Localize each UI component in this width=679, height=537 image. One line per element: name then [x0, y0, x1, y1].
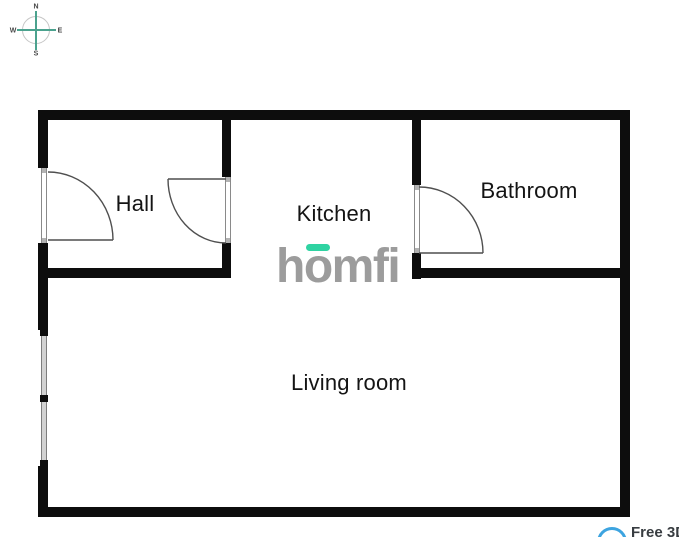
- wall-exterior-left-upper: [38, 110, 48, 168]
- door-jamb-cap: [42, 168, 46, 173]
- compass-label-east: E: [58, 28, 63, 35]
- room-label-living-room: Living room: [291, 370, 407, 396]
- free-3d-badge-icon: [597, 527, 627, 537]
- room-label-bathroom: Bathroom: [481, 178, 578, 204]
- wall-bathroom-bottom: [412, 268, 630, 278]
- wall-hall-kitchen-upper: [222, 110, 231, 177]
- wall-exterior-top: [38, 110, 630, 120]
- door-jamb-entry: [41, 168, 47, 243]
- logo-text-mfi: mfi: [332, 240, 400, 293]
- wall-kitchen-bathroom-upper: [412, 110, 421, 185]
- door-jamb-cap: [415, 248, 419, 253]
- door-jamb-cap: [42, 238, 46, 243]
- homfi-logo: homfi: [276, 243, 399, 291]
- wall-exterior-left-middle: [38, 243, 48, 330]
- window-mullion-bottom: [40, 460, 48, 467]
- compass-label-south: S: [34, 51, 39, 58]
- compass-needle-horizontal: [17, 29, 56, 31]
- door-jamb-cap: [415, 185, 419, 190]
- floor-plan: N E S W Hall Kitchen Ba: [0, 0, 679, 537]
- door-arc-hall-kitchen: [168, 179, 226, 243]
- window-mullion-middle: [40, 395, 48, 402]
- door-jamb-cap: [226, 238, 230, 243]
- free-3d-badge-label: Free 3D: [631, 524, 679, 537]
- wall-hall-bottom: [38, 268, 231, 278]
- wall-exterior-left-lower: [38, 466, 48, 517]
- room-label-kitchen: Kitchen: [297, 201, 372, 227]
- room-label-hall: Hall: [116, 191, 155, 217]
- logo-text-h: h: [276, 240, 304, 293]
- logo-macron-bar: [306, 244, 330, 251]
- door-jamb-hall-kitchen: [225, 177, 231, 243]
- door-jamb-kitchen-bathroom: [414, 185, 420, 253]
- wall-exterior-bottom: [38, 507, 630, 517]
- door-jamb-cap: [226, 177, 230, 182]
- compass-label-west: W: [10, 28, 17, 35]
- door-arc-kitchen-bathroom: [419, 187, 483, 253]
- door-arc-entry: [48, 172, 113, 240]
- compass-label-north: N: [33, 4, 38, 11]
- window-mullion-top: [40, 329, 48, 336]
- wall-exterior-right: [620, 110, 630, 517]
